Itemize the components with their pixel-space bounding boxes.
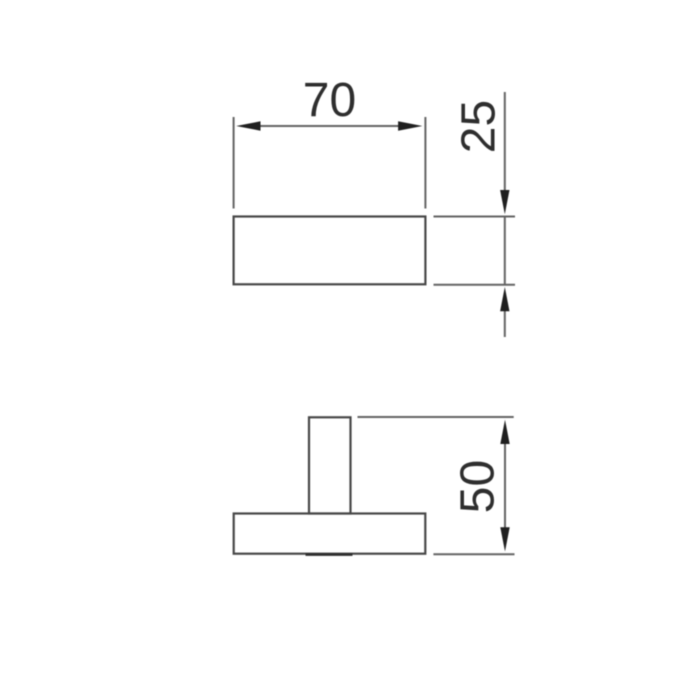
svg-text:25: 25 [453, 100, 506, 153]
svg-text:70: 70 [303, 74, 356, 127]
svg-text:50: 50 [452, 460, 505, 513]
